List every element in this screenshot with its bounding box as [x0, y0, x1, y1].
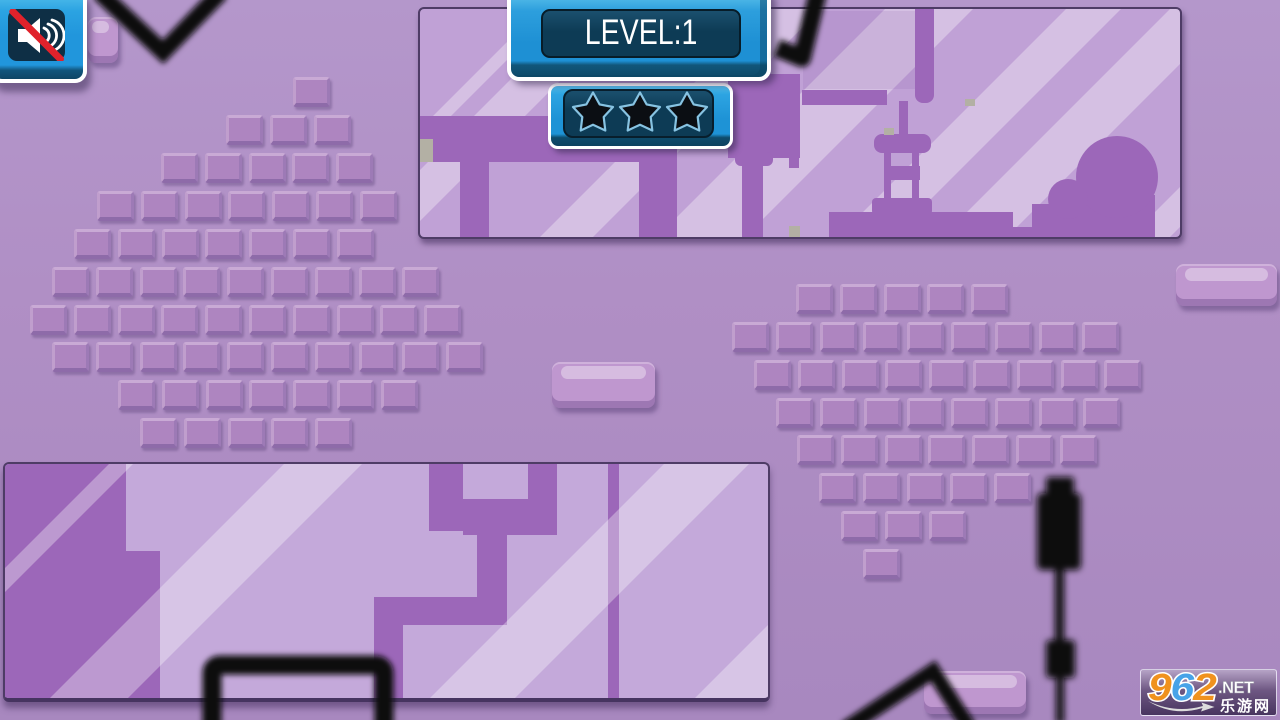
svg-text:乐游网: 乐游网	[1220, 697, 1271, 715]
svg-text:.NET: .NET	[1218, 679, 1254, 697]
svg-text:962: 962	[1148, 670, 1217, 708]
